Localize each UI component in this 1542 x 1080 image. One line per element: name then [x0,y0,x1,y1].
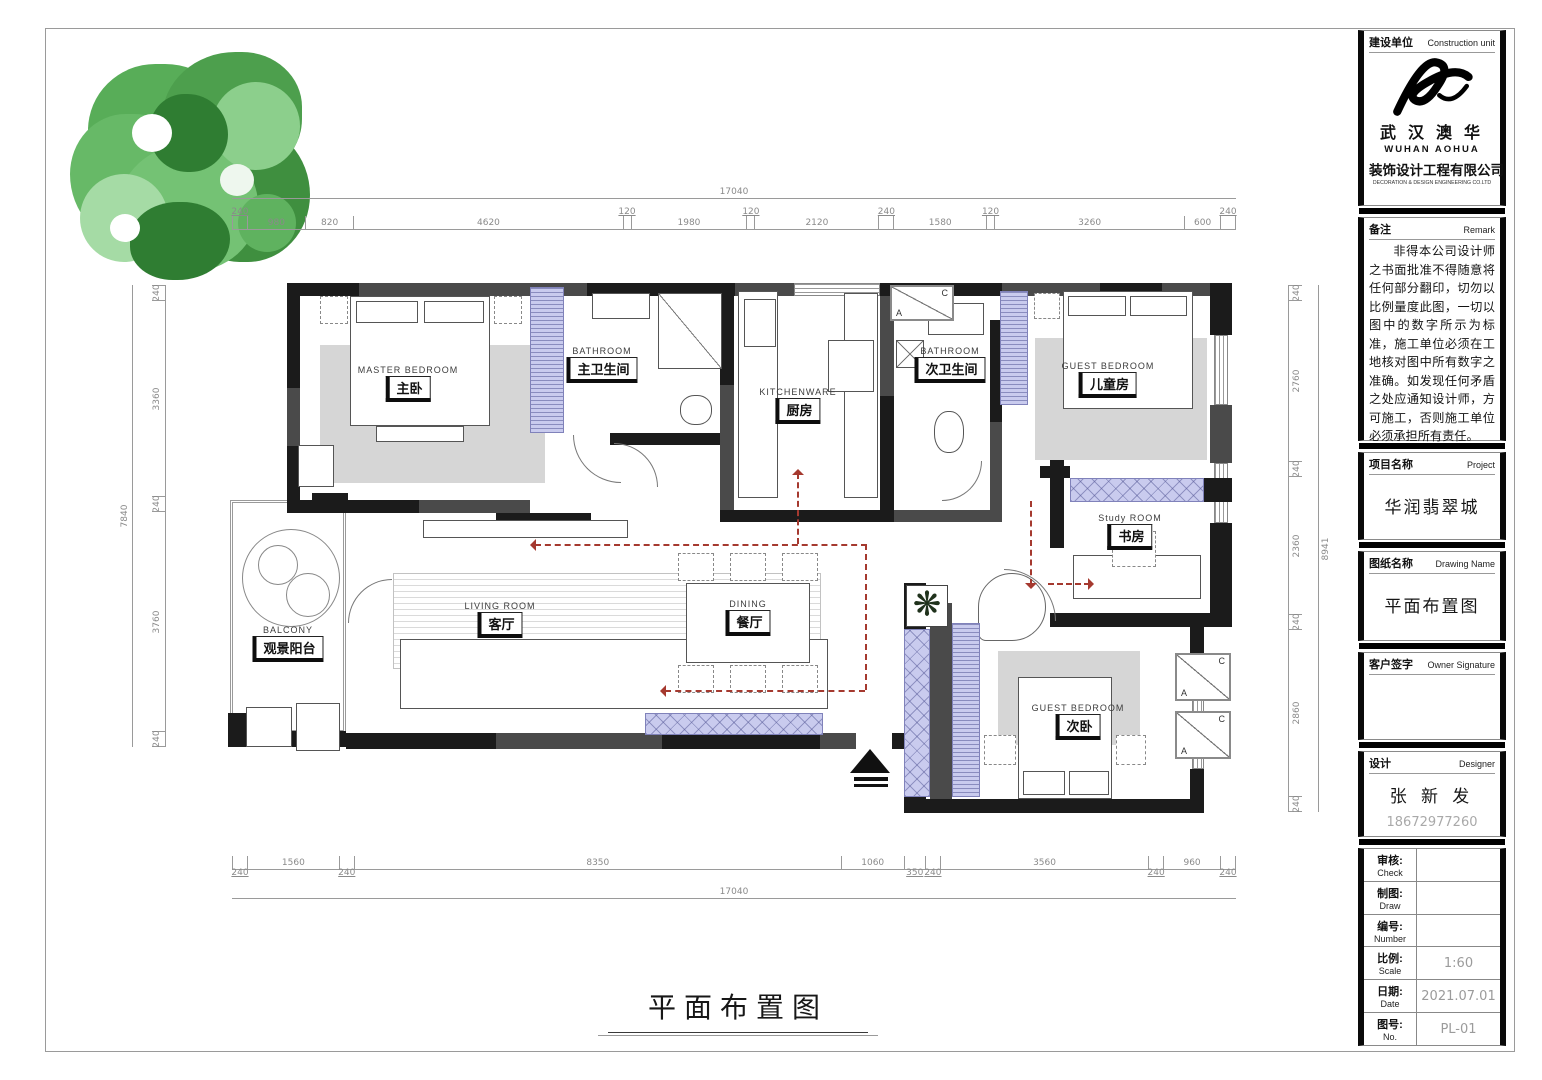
room-label-bathroom1: BATHROOM 主卫生间 [566,346,637,383]
dim-segment: 120 [746,216,754,229]
wall-segment [1204,478,1232,502]
dim-segment-value: 240 [338,868,355,878]
wall-segment [610,433,732,445]
label-en: Designer [1459,759,1495,769]
dimension-total-top: 17040 [232,186,1236,199]
cabinet [904,629,930,797]
circulation-line [797,473,799,544]
room-label-en: BATHROOM [914,346,985,356]
dim-segment: 120 [623,216,631,229]
section-drawing-name: 图纸名称 Drawing Name 平面布置图 [1358,551,1506,641]
room-label-en: GUEST BEDROOM [1032,703,1125,713]
drawing-sheet: A C A C A C MASTER BEDROOM 主卧 BATHROOM 主… [0,0,1542,1080]
label-zh: 建设单位 [1369,34,1413,50]
dim-segment-value: 4620 [477,218,500,228]
circulation-arrowhead [1088,578,1100,590]
circulation-arrowhead [654,685,666,697]
info-label: 制图:Draw [1364,882,1417,914]
circulation-arrowhead [792,463,804,475]
label-en: Remark [1463,225,1495,235]
designer-phone: 18672977260 [1369,815,1495,830]
ac-letter-a: A [896,308,902,318]
dim-segment-value: 240 [924,868,941,878]
floor-plan: A C A C A C MASTER BEDROOM 主卧 BATHROOM 主… [228,283,1236,815]
dim-segment: 3760 [152,511,165,731]
wall-segment [419,500,530,513]
balcony-chair [286,573,330,617]
dim-segment: 1060 [841,856,904,869]
entry-arrow [850,749,890,773]
label-zh: 客户签字 [1369,656,1413,672]
dim-segment: 240 [1289,461,1302,476]
room-label-zh: 次卧 [1055,714,1100,740]
room-label-en: Study ROOM [1098,513,1162,523]
dim-segment: 240 [1148,856,1163,869]
dim-segment-value: 600 [1194,218,1211,228]
dimension-value: 7840 [120,505,130,528]
dim-segment-value: 3360 [152,387,162,410]
wall-segment [287,283,359,296]
dim-segment: 350 [904,856,925,869]
room-label-dining: DINING 餐厅 [725,599,770,636]
info-row: 图号:No.PL-01 [1364,1013,1500,1045]
dim-segment: 1560 [247,856,339,869]
chair [730,553,766,581]
dim-segment: 240 [1220,856,1236,869]
info-label: 编号:Number [1364,915,1417,947]
entry-arrow-bar [854,777,888,781]
info-value [1417,849,1500,881]
label-zh: 编号: [1377,918,1403,934]
ac-letter-c: C [1219,656,1226,666]
sheet-title: 平面布置图 [608,986,868,1033]
section-project: 项目名称 Project 华润翡翠城 [1358,452,1506,540]
wall-segment [662,733,820,749]
dim-segment: 240 [152,496,165,511]
wall-segment [990,422,1002,510]
dim-segment: 1580 [893,216,986,229]
company-name-en: WUHAN AOHUA [1369,144,1495,155]
info-value: PL-01 [1417,1013,1500,1045]
room-label-master-bedroom: MASTER BEDROOM 主卧 [358,365,459,402]
dim-segment: 820 [305,216,354,229]
dim-segment: 2120 [754,216,878,229]
room-label-en: GUEST BEDROOM [1062,361,1155,371]
bench [376,426,464,442]
wall-segment [894,510,1002,522]
dim-segment-value: 1560 [282,858,305,868]
room-label-zh: 书房 [1107,524,1152,550]
dim-segment: 3360 [152,300,165,496]
dim-segment: 600 [1184,216,1220,229]
info-label: 日期:Date [1364,980,1417,1012]
circulation-line [665,690,865,692]
tv-cabinet [423,520,628,538]
section-designer: 设计 Designer 张 新 发 18672977260 [1358,751,1506,837]
wall-segment [880,396,894,510]
label-zh: 备注 [1369,221,1391,237]
label-en: Draw [1379,901,1400,911]
info-row: 制图:Draw [1364,882,1500,915]
ac-letter-a: A [1181,688,1187,698]
label-en: Drawing Name [1435,559,1495,569]
company-name-zh: 武 汉 澳 华 [1369,119,1495,143]
room-label-kids-room: GUEST BEDROOM 儿童房 [1062,361,1155,398]
divider-bar [1359,208,1505,214]
dim-segment: 240 [152,285,165,300]
dim-segment-value: 3760 [152,610,162,633]
ac-letter-a: A [1181,746,1187,756]
chair [678,665,714,693]
wall-segment [930,603,952,799]
entry-cabinet [645,713,823,735]
company-line2-zh: 装饰设计工程有限公司 [1369,159,1495,179]
circulation-arrowhead [1025,583,1037,595]
room-label-kitchen: KITCHENWARE 厨房 [759,387,836,424]
room-label-zh: 观景阳台 [252,636,323,662]
dim-segment: 240 [1220,216,1236,229]
dim-segment: 240 [1289,614,1302,629]
room-label-zh: 厨房 [775,398,820,424]
dimension-total-right: 8941 [1318,285,1331,812]
dim-segment-value: 350 [906,868,923,878]
dim-segment-value: 3560 [1033,858,1056,868]
info-value: 2021.07.01 [1417,980,1500,1012]
room-label-zh: 客厅 [477,612,522,638]
dim-segment: 240 [925,856,940,869]
wall-segment [496,733,662,749]
dim-segment-value: 2360 [1292,534,1302,557]
wall-segment [1210,283,1232,335]
dim-segment: 240 [1289,796,1302,812]
label-en: Construction unit [1427,38,1495,48]
label-zh: 图号: [1377,1016,1403,1032]
dim-segment: 240 [232,216,247,229]
wall-segment [346,733,496,749]
dim-segment: 120 [986,216,994,229]
label-en: No. [1383,1032,1397,1042]
wall-segment [1210,405,1232,463]
wall-segment [1050,453,1064,548]
dim-segment: 240 [339,856,354,869]
chair [730,665,766,693]
divider-bar [1359,643,1505,649]
dim-segment-value: 240 [1148,868,1165,878]
dimension-value: 17040 [720,887,749,897]
dim-segment: 240 [232,856,247,869]
remark-text: 非得本公司设计师之书面批准不得随意将任何部分翻印，切勿以比例量度此图，一切以图中… [1369,242,1495,446]
dim-segment-value: 960 [1183,858,1200,868]
section-header: 备注 Remark [1369,221,1495,240]
dim-segment-value: 240 [1219,207,1236,217]
washer [246,707,292,747]
label-zh: 图纸名称 [1369,555,1413,571]
wall-segment [1050,613,1190,627]
company-logo [1369,55,1495,119]
divider-bar [1359,742,1505,748]
label-zh: 比例: [1377,950,1403,966]
dim-segment: 980 [247,216,305,229]
pillow [356,301,418,323]
label-en: Owner Signature [1427,660,1495,670]
wall-segment [720,385,734,510]
dim-segment-value: 8350 [586,858,609,868]
section-info-table: 审核:Check制图:Draw编号:Number比例:Scale1:60日期:D… [1358,848,1506,1046]
cabinet [296,703,340,751]
room-label-en: KITCHENWARE [759,387,836,397]
wall-segment [820,733,856,749]
dim-segment-value: 2120 [805,218,828,228]
sheet-title-text: 平面布置图 [648,993,828,1024]
circulation-line [535,544,867,546]
dim-segment-value: 240 [1292,795,1302,812]
dim-segment-value: 2760 [1292,370,1302,393]
toilet [680,395,712,425]
plant [906,585,948,627]
pillow [1023,771,1065,795]
label-zh: 日期: [1377,983,1403,999]
room-label-balcony: BALCONY 观景阳台 [252,625,323,662]
dim-segment-value: 240 [231,868,248,878]
wall-segment [312,493,348,513]
room-label-zh: 主卫生间 [566,357,637,383]
circulation-line [865,544,867,690]
chair [782,553,818,581]
circulation-line [1030,501,1032,585]
dimension-row-bottom: 2401560240835010603502403560240960240 [232,856,1236,870]
dim-segment: 2760 [1289,300,1302,461]
section-header: 建设单位 Construction unit [1369,34,1495,53]
label-en: Check [1377,868,1403,878]
info-row: 编号:Number [1364,915,1500,948]
ac-unit-box: A C [1175,653,1231,701]
vanity [592,293,650,319]
wall-segment [1190,769,1204,813]
chair [678,553,714,581]
wardrobe [530,287,564,433]
wall-segment [1190,613,1232,627]
nightstand [1034,293,1060,319]
hall-cabinet [1070,478,1204,502]
label-en: Date [1380,999,1399,1009]
room-label-zh: 儿童房 [1079,372,1137,398]
info-value: 1:60 [1417,947,1500,979]
section-header: 项目名称 Project [1369,456,1495,475]
shower [658,293,722,369]
room-label-en: BALCONY [252,625,323,635]
room-label-en: MASTER BEDROOM [358,365,459,375]
pillow [1130,296,1187,316]
dim-segment-value: 820 [321,218,338,228]
dimension-row-top: 2409808204620120198012021202401580120326… [232,216,1236,230]
info-value [1417,915,1500,947]
pillow [1068,296,1126,316]
room-label-zh: 主卧 [385,376,430,402]
dim-segment-value: 240 [1219,868,1236,878]
room-label-living-room: LIVING ROOM 客厅 [464,601,535,638]
section-header: 设计 Designer [1369,755,1495,774]
door-arc [942,461,982,501]
wardrobe [1000,291,1028,405]
dim-segment: 3260 [994,216,1184,229]
company-line2-en: DECORATION & DESIGN ENGINEERING CO.LTD [1369,180,1495,186]
dim-segment-value: 3260 [1078,218,1101,228]
room-label-zh: 次卫生间 [914,357,985,383]
wall-segment [287,388,300,446]
nightstand [494,296,522,324]
title-block: 建设单位 Construction unit 武 汉 澳 华 WUHAN AOH… [1358,30,1506,1046]
ac-letter-c: C [1219,714,1226,724]
dim-segment: 3560 [940,856,1148,869]
info-row: 审核:Check [1364,849,1500,882]
dimension-row-right: 240276024023602402860240 [1288,285,1302,812]
ac-unit-box: A C [890,285,954,321]
room-label-en: DINING [725,599,770,609]
dim-segment: 2360 [1289,476,1302,614]
section-header: 图纸名称 Drawing Name [1369,555,1495,574]
dim-segment: 2860 [1289,629,1302,796]
section-header: 客户签字 Owner Signature [1369,656,1495,675]
dim-segment: 240 [1289,285,1302,300]
dimension-total-bottom: 17040 [232,886,1236,899]
dim-segment-value: 240 [152,730,162,747]
pillow [424,301,484,323]
section-remark: 备注 Remark 非得本公司设计师之书面批准不得随意将任何部分翻印，切勿以比例… [1358,217,1506,441]
circulation-arrowhead [524,539,536,551]
divider-bar [1359,839,1505,845]
wall-segment [904,799,1204,813]
info-label: 比例:Scale [1364,947,1417,979]
ac-unit [298,445,334,487]
divider-bar [1359,542,1505,548]
dim-segment: 8350 [354,856,841,869]
info-label: 图号:No. [1364,1013,1417,1045]
room-label-bathroom2: BATHROOM 次卫生间 [914,346,985,383]
dim-segment-value: 1060 [861,858,884,868]
info-label: 审核:Check [1364,849,1417,881]
dim-segment-value: 2860 [1292,702,1302,725]
info-row: 比例:Scale1:60 [1364,947,1500,980]
dimension-value: 17040 [720,187,749,197]
entry-arrow-bar [854,784,888,787]
wall-segment [287,296,300,388]
sink [744,299,776,347]
tree-illustration [70,52,320,290]
toilet [934,411,964,453]
wall-segment [1210,523,1232,627]
info-row: 日期:Date2021.07.01 [1364,980,1500,1013]
stove [828,340,874,392]
circulation-line [1048,583,1090,585]
door-arc [614,443,658,487]
room-label-zh: 餐厅 [725,610,770,636]
door-arc [348,579,392,623]
nightstand [984,735,1016,765]
label-en: Scale [1379,966,1402,976]
label-zh: 项目名称 [1369,456,1413,472]
room-label-en: LIVING ROOM [464,601,535,611]
dim-segment-value: 1980 [678,218,701,228]
designer-name: 张 新 发 [1369,782,1495,807]
nightstand [320,296,348,324]
label-zh: 制图: [1377,885,1403,901]
dim-segment-value: 980 [268,218,285,228]
dimension-row-left: 24033602403760240 [152,285,166,747]
label-zh: 审核: [1377,852,1403,868]
dim-segment: 240 [878,216,893,229]
project-name: 华润翡翠城 [1369,493,1495,518]
dim-segment: 4620 [353,216,622,229]
room-label-en: BATHROOM [566,346,637,356]
label-en: Number [1374,934,1406,944]
chair [782,665,818,693]
pillow [1069,771,1109,795]
info-value [1417,882,1500,914]
wall-segment [720,510,894,522]
counter [844,293,878,498]
dim-segment: 240 [152,731,165,747]
logo-glyph [1386,55,1478,119]
dimension-value: 8941 [1321,537,1331,560]
ac-letter-c: C [942,288,949,298]
dim-segment: 960 [1163,856,1220,869]
ac-unit-box: A C [1175,711,1231,759]
dim-segment-value: 1580 [929,218,952,228]
window [1214,335,1228,405]
drawing-name: 平面布置图 [1369,592,1495,617]
room-label-study: Study ROOM 书房 [1098,513,1162,550]
section-construction-unit: 建设单位 Construction unit 武 汉 澳 华 WUHAN AOH… [1358,30,1506,206]
wardrobe [952,623,980,797]
wall-segment [287,500,419,513]
dim-segment: 1980 [631,216,747,229]
label-en: Project [1467,460,1495,470]
dimension-total-left: 7840 [120,285,133,747]
section-owner-signature: 客户签字 Owner Signature [1358,652,1506,740]
room-label-guest-bedroom: GUEST BEDROOM 次卧 [1032,703,1125,740]
label-zh: 设计 [1369,755,1391,771]
wall-segment [720,283,734,385]
